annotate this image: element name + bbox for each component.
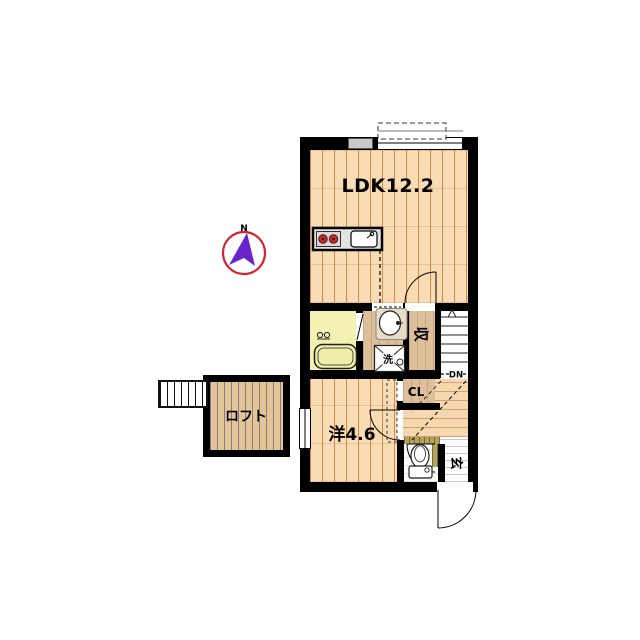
floor-plan: N bbox=[0, 0, 640, 640]
loft-ladder-outline bbox=[387, 380, 397, 442]
door-arc-storage bbox=[405, 272, 436, 303]
bath-faucet-icon bbox=[317, 332, 330, 339]
up-arrow-icon bbox=[448, 310, 456, 317]
bath-door-leaf bbox=[357, 314, 363, 340]
kitchen-counter bbox=[313, 228, 382, 250]
toilet-icon bbox=[409, 445, 432, 479]
stairs-down-label: DN bbox=[449, 371, 463, 381]
balcony-outline bbox=[378, 123, 463, 139]
washing-machine-icon: 洗 bbox=[375, 346, 405, 372]
entrance-label: 玄 bbox=[448, 456, 464, 469]
room-ldk-label: LDK12.2 bbox=[342, 175, 435, 197]
storage-label: 収 bbox=[412, 326, 430, 342]
room-loft-label: ロフト bbox=[225, 409, 267, 425]
bathtub-icon bbox=[315, 345, 357, 369]
closet-cl-label: CL bbox=[408, 385, 425, 399]
laundry-label: 洗 bbox=[383, 353, 393, 366]
compass-north-label: N bbox=[240, 224, 248, 234]
room-western-label: 洋4.6 bbox=[328, 424, 375, 445]
kitchen-sink-icon bbox=[351, 231, 377, 247]
compass-icon: N bbox=[223, 224, 265, 274]
washbasin-icon bbox=[376, 309, 407, 340]
plan-linework: N bbox=[0, 0, 640, 640]
kitchen-stove-icon bbox=[317, 232, 341, 247]
door-arc-entry bbox=[438, 490, 476, 528]
